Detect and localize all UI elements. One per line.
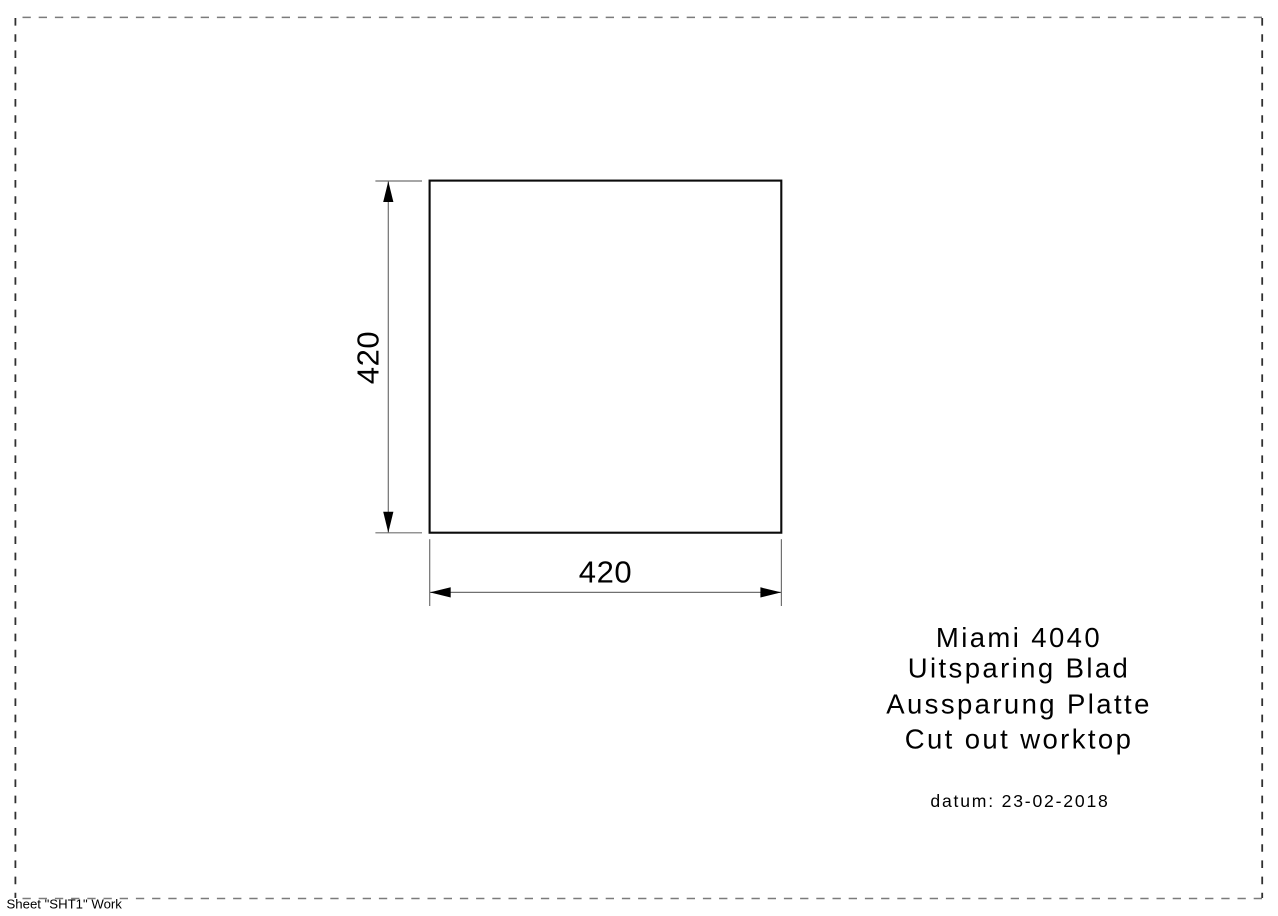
svg-text:Sheet "SHT1" Work: Sheet "SHT1" Work — [7, 897, 123, 912]
svg-text:datum: 23-02-2018: datum: 23-02-2018 — [930, 791, 1109, 811]
svg-text:420: 420 — [579, 555, 633, 590]
svg-text:Cut out worktop: Cut out worktop — [905, 724, 1134, 755]
svg-text:Uitsparing Blad: Uitsparing Blad — [908, 653, 1130, 684]
svg-text:420: 420 — [351, 331, 386, 385]
svg-text:Aussparung Platte: Aussparung Platte — [886, 689, 1152, 720]
svg-text:Miami 4040: Miami 4040 — [936, 622, 1102, 653]
